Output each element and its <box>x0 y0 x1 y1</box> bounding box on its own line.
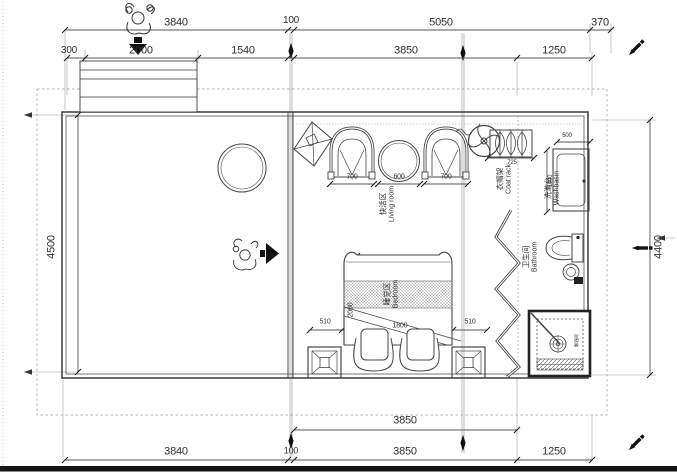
person-top-view-icon <box>233 239 258 270</box>
room-label-washbasin: 洗漱台 Washbasin <box>544 171 561 205</box>
room-label-bathroom: 卫生间 Bathroom <box>522 242 539 272</box>
room-label-bedroom-zh: 睡觉区 <box>383 280 392 308</box>
dim-bed-width: 1800 <box>393 323 408 330</box>
right-arrow-icon <box>260 243 279 264</box>
dim-bed-gap-right: 510 <box>464 319 475 326</box>
dim-tea-table: 600 <box>393 174 404 181</box>
room-label-bathroom-en: Bathroom <box>531 242 539 272</box>
dim-bottom2-1250: 1250 <box>542 447 566 458</box>
dim-bed-gap-left: 510 <box>319 319 330 326</box>
pen-icon-right <box>632 246 653 251</box>
room-label-living-en: Living room <box>388 186 396 222</box>
dim-top1-370: 370 <box>591 18 609 29</box>
room-label-living: 快活区 Living room <box>379 186 396 222</box>
dim-armchair-right: 700 <box>440 174 451 181</box>
fan-icon <box>456 124 500 158</box>
dim-left-4500: 4500 <box>47 235 58 259</box>
room-label-bedroom-en: Bedroom <box>392 280 400 308</box>
page-bottom-border <box>0 466 677 472</box>
room-label-coat-rack-zh: 衣帽架 <box>496 164 505 194</box>
dim-top1-5050: 5050 <box>429 18 453 29</box>
coat-rack <box>490 130 532 157</box>
floorplan-linework <box>0 0 677 473</box>
kite-decor-icon <box>294 122 332 166</box>
dim-top1-100: 100 <box>283 16 299 26</box>
pen-icon-bottom-right <box>627 434 645 452</box>
dim-top2-3850: 3850 <box>394 46 418 57</box>
dim-top2-300: 300 <box>61 46 77 56</box>
round-table <box>218 144 266 192</box>
dim-top2-2000: 2000 <box>129 46 153 57</box>
zigzag-partition <box>496 210 519 377</box>
dim-top2-1250: 1250 <box>542 46 566 57</box>
room-label-coat-rack: 衣帽架 Coat rack <box>496 164 513 194</box>
dim-bottom2-3850: 3850 <box>393 447 417 458</box>
dim-bottom2-3840: 3840 <box>164 447 188 458</box>
person-pushing-icon <box>126 3 155 34</box>
room-label-washbasin-en: Washbasin <box>553 171 561 205</box>
toilet <box>546 234 583 284</box>
dim-right-4400: 4400 <box>654 235 665 259</box>
room-label-shower: 淋浴间 <box>575 335 580 348</box>
floor-plan-page: 3840 100 5050 370 300 2000 1540 3850 125… <box>0 0 677 473</box>
room-label-living-zh: 快活区 <box>379 186 388 222</box>
room-label-washbasin-zh: 洗漱台 <box>544 171 553 205</box>
dim-armchair-left: 700 <box>346 174 357 181</box>
room-label-bathroom-zh: 卫生间 <box>522 242 531 272</box>
section-lines <box>288 33 465 457</box>
pen-icon-top-right <box>627 39 645 57</box>
dim-bottom1-3850: 3850 <box>393 416 417 427</box>
dim-top1-3840: 3840 <box>164 18 188 29</box>
dim-bottom2-100: 100 <box>284 447 298 456</box>
room-label-bedroom: 睡觉区 Bedroom <box>383 280 400 308</box>
dim-washbasin-width: 500 <box>562 133 571 139</box>
dim-top2-1540: 1540 <box>231 46 255 57</box>
shower-cabin <box>529 311 590 376</box>
entrance-steps <box>80 61 197 112</box>
dim-bed-length: 2000 <box>348 303 355 318</box>
room-label-coat-rack-en: Coat rack <box>505 164 513 194</box>
